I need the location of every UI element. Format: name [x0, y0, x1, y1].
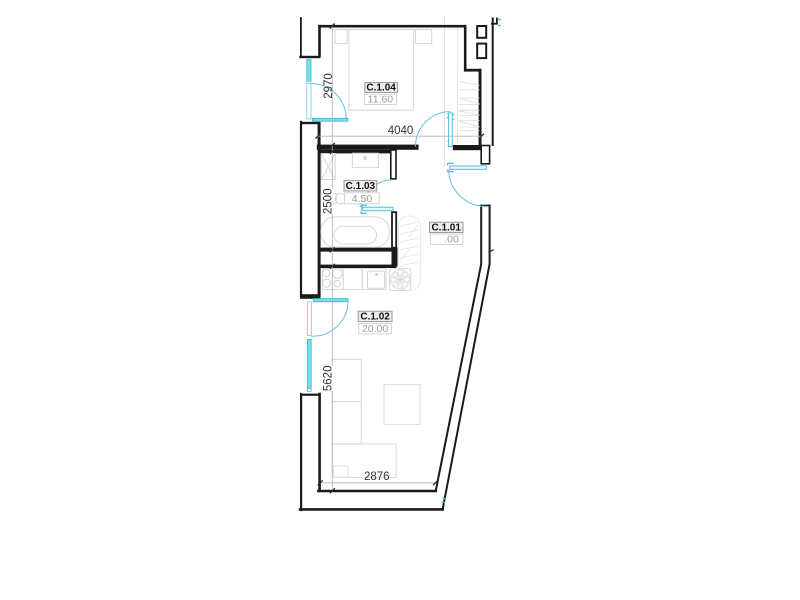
svg-text:20.00: 20.00	[362, 323, 388, 335]
svg-text:C.1.01: C.1.01	[431, 223, 461, 234]
svg-text:4.50: 4.50	[352, 193, 373, 205]
svg-text:2500: 2500	[323, 189, 335, 215]
svg-text:.00: .00	[444, 233, 459, 245]
svg-text:2876: 2876	[364, 471, 390, 483]
svg-text:C.1.04: C.1.04	[366, 83, 396, 94]
svg-text:11.60: 11.60	[368, 94, 394, 106]
svg-text:4040: 4040	[388, 125, 414, 137]
svg-text:C.1.02: C.1.02	[360, 312, 390, 323]
svg-text:5620: 5620	[323, 366, 335, 392]
svg-text:C.1.03: C.1.03	[346, 181, 376, 192]
svg-text:2970: 2970	[323, 73, 335, 99]
